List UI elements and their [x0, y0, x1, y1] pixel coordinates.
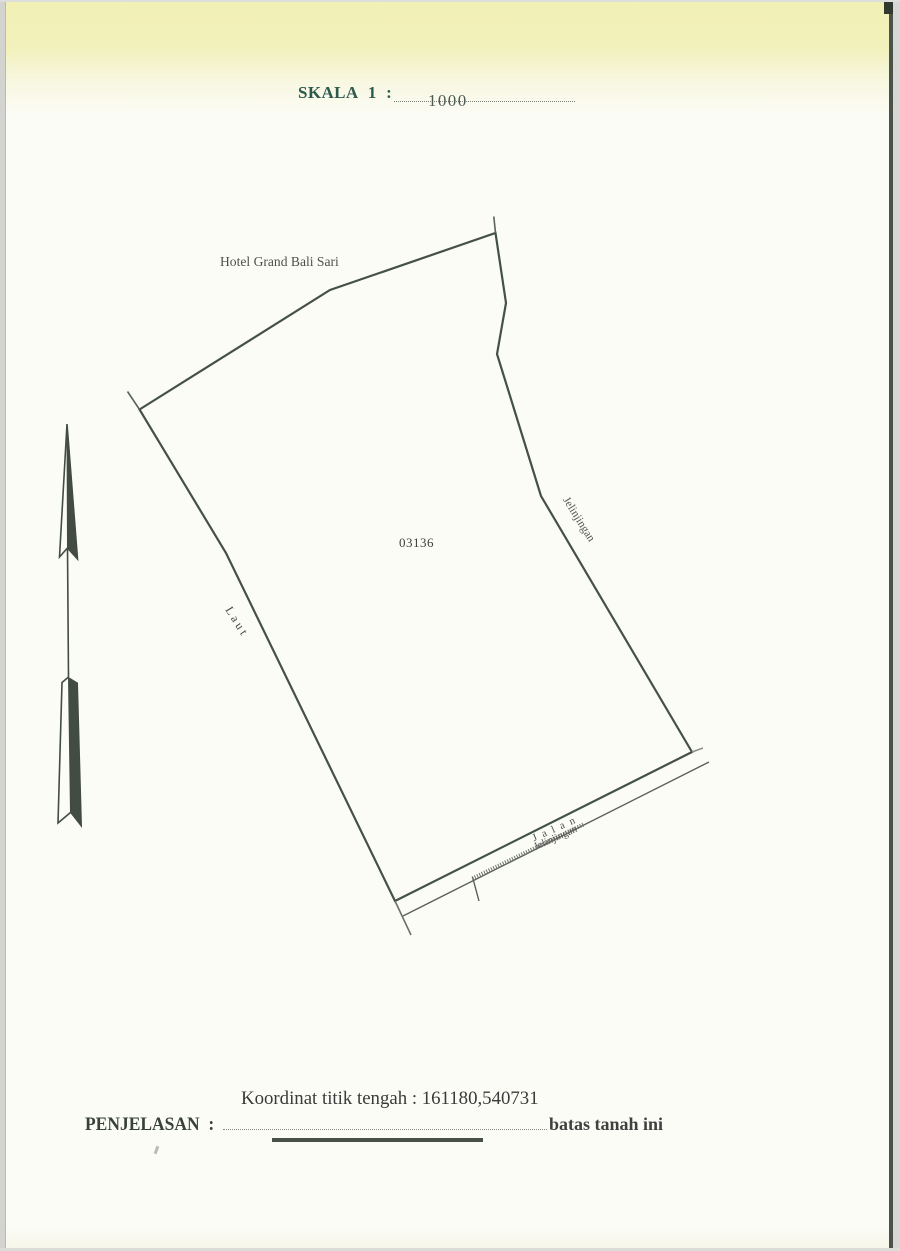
- svg-text:Laut: Laut: [222, 604, 252, 640]
